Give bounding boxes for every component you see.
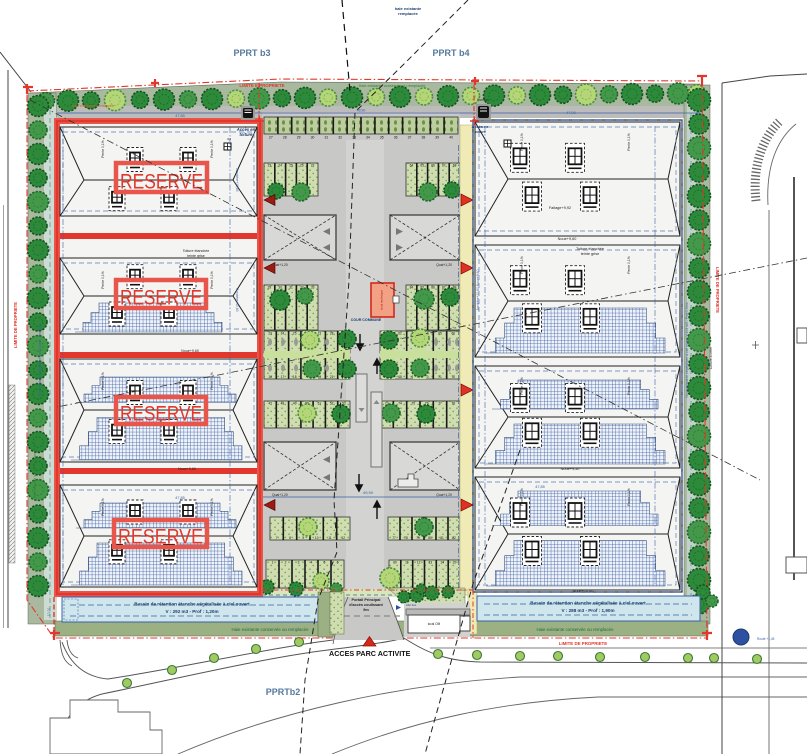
- svg-text:80: 80: [428, 536, 432, 540]
- svg-text:Toiture étanchée: Toiture étanchée: [183, 249, 210, 253]
- svg-text:9m: 9m: [363, 608, 369, 612]
- svg-text:82: 82: [452, 536, 456, 540]
- svg-text:2: 2: [285, 561, 287, 565]
- svg-text:31: 31: [289, 286, 293, 290]
- svg-text:Bassin de rétention étanche vé: Bassin de rétention étanche végétalisée …: [530, 601, 646, 606]
- svg-text:10: 10: [315, 536, 319, 540]
- svg-text:86: 86: [431, 286, 435, 290]
- svg-text:30: 30: [311, 136, 315, 140]
- svg-text:LIMITE DE PROPRIETE: LIMITE DE PROPRIETE: [13, 302, 18, 348]
- svg-text:14: 14: [440, 561, 444, 565]
- svg-text:Pente 0,1%: Pente 0,1%: [627, 377, 631, 395]
- svg-text:toiture: toiture: [239, 132, 253, 137]
- svg-text:Pente 0,1%: Pente 0,1%: [627, 488, 631, 506]
- svg-text:PPRT b3: PPRT b3: [233, 48, 270, 58]
- svg-text:Pente 0,1%: Pente 0,1%: [101, 271, 105, 289]
- svg-text:68: 68: [453, 164, 457, 168]
- svg-text:28: 28: [330, 332, 334, 336]
- svg-text:52: 52: [330, 402, 334, 406]
- svg-text:47,85: 47,85: [175, 496, 185, 500]
- svg-text:V : 288 m3 - Prof : 1,90m: V : 288 m3 - Prof : 1,90m: [561, 608, 614, 613]
- svg-text:23: 23: [268, 164, 272, 168]
- svg-text:Faitage+9,92: Faitage+9,92: [549, 206, 571, 210]
- svg-text:65: 65: [420, 164, 424, 168]
- svg-text:Noue+9,60: Noue+9,60: [558, 237, 577, 241]
- svg-text:27: 27: [269, 136, 273, 140]
- svg-text:78: 78: [452, 402, 456, 406]
- svg-text:Pente 0,1%: Pente 0,1%: [520, 133, 524, 151]
- svg-text:24: 24: [281, 332, 285, 336]
- svg-text:Noue+9,50: Noue+9,50: [561, 467, 580, 471]
- svg-text:COUR COMMUNE: COUR COMMUNE: [351, 318, 382, 322]
- svg-text:49,90: 49,90: [363, 490, 374, 495]
- svg-text:Haie existante conservée ou re: Haie existante conservée ou remplacée: [536, 627, 614, 632]
- svg-text:Route +1,45: Route +1,45: [757, 637, 775, 641]
- svg-text:48: 48: [281, 402, 285, 406]
- svg-text:78: 78: [404, 536, 408, 540]
- svg-text:81: 81: [440, 536, 444, 540]
- svg-text:Bassin de rétention étanche vé: Bassin de rétention étanche végétalisée …: [134, 602, 250, 607]
- svg-text:79: 79: [416, 536, 420, 540]
- svg-text:62: 62: [398, 332, 402, 336]
- svg-text:Noue existante végétalisée à c: Noue existante végétalisée à ciel ouvert…: [685, 302, 689, 397]
- svg-text:Pente 0,1%: Pente 0,1%: [520, 377, 524, 395]
- svg-text:31: 31: [325, 136, 329, 140]
- svg-text:Portillon: Portillon: [477, 98, 489, 102]
- svg-text:8: 8: [289, 536, 291, 540]
- svg-text:Pente 0,1%: Pente 0,1%: [627, 256, 631, 274]
- svg-text:30: 30: [278, 286, 282, 290]
- svg-text:37: 37: [408, 136, 412, 140]
- svg-text:64: 64: [410, 164, 414, 168]
- svg-text:Quai+1,20: Quai+1,20: [272, 493, 288, 497]
- svg-text:25: 25: [293, 332, 297, 336]
- svg-text:toiture: toiture: [474, 130, 486, 134]
- svg-text:local technique: local technique: [380, 290, 384, 310]
- svg-text:13: 13: [429, 561, 433, 565]
- svg-text:Pente 0,1%: Pente 0,1%: [210, 140, 214, 158]
- svg-text:Quai+1,20: Quai+1,20: [436, 263, 452, 267]
- svg-text:75: 75: [412, 402, 416, 406]
- svg-text:35: 35: [380, 136, 384, 140]
- svg-text:47,85: 47,85: [535, 485, 545, 489]
- svg-text:haie existante conservée: haie existante conservée: [72, 104, 114, 108]
- svg-text:34: 34: [366, 136, 370, 140]
- svg-text:local OM: local OM: [428, 622, 441, 626]
- svg-text:36: 36: [394, 136, 398, 140]
- svg-text:Pente 0,1%: Pente 0,1%: [210, 271, 214, 289]
- svg-text:Pente 0,1%: Pente 0,1%: [101, 498, 105, 516]
- svg-text:LIMITE DE PROPRIETE: LIMITE DE PROPRIETE: [559, 641, 607, 646]
- svg-text:40: 40: [449, 136, 453, 140]
- svg-text:Pente 0,1%: Pente 0,1%: [520, 256, 524, 274]
- svg-text:28: 28: [283, 136, 287, 140]
- svg-text:25: 25: [289, 164, 293, 168]
- svg-text:Noue+9,60: Noue+9,60: [178, 467, 196, 471]
- svg-text:Portail Principal: Portail Principal: [352, 598, 381, 602]
- svg-text:47: 47: [268, 402, 272, 406]
- svg-text:Toiture étanchée: Toiture étanchée: [576, 247, 604, 251]
- svg-text:RESERVE: RESERVE: [120, 403, 202, 426]
- svg-text:ACCES PARC ACTIVITE: ACCES PARC ACTIVITE: [329, 649, 411, 658]
- svg-text:Haie existante conservée ou re: Haie existante conservée ou remplacée: [231, 627, 309, 632]
- svg-text:9: 9: [302, 536, 304, 540]
- svg-text:47,00: 47,00: [566, 111, 576, 115]
- svg-text:6: 6: [337, 561, 339, 565]
- svg-text:39: 39: [435, 136, 439, 140]
- svg-text:PPRT b4: PPRT b4: [432, 48, 469, 58]
- svg-text:Pente 0,1%: Pente 0,1%: [210, 498, 214, 516]
- svg-text:77: 77: [392, 536, 396, 540]
- svg-text:Acrotère+10,60: Acrotère+10,60: [235, 288, 239, 311]
- svg-text:V : 292 m3 - Prof : 1,20m: V : 292 m3 - Prof : 1,20m: [165, 609, 218, 614]
- svg-text:RESERVE: RESERVE: [120, 287, 202, 310]
- svg-text:Noue existante végétalisée à c: Noue existante végétalisée à ciel ouvert…: [38, 324, 42, 396]
- svg-text:66: 66: [452, 332, 456, 336]
- svg-text:teinte grise: teinte grise: [187, 254, 205, 258]
- svg-text:5: 5: [324, 561, 326, 565]
- svg-text:teinte grise: teinte grise: [581, 252, 600, 256]
- svg-text:Abri bus: Abri bus: [406, 603, 417, 607]
- svg-text:Pente 0,1%: Pente 0,1%: [520, 488, 524, 506]
- svg-text:4: 4: [311, 561, 313, 565]
- svg-text:47,85: 47,85: [175, 114, 185, 118]
- svg-text:LIMITE DE PROPRIETE: LIMITE DE PROPRIETE: [715, 267, 720, 313]
- svg-text:LIMITE E PROPRIETE: LIMITE E PROPRIETE: [239, 83, 284, 88]
- svg-text:7: 7: [276, 536, 278, 540]
- svg-text:Pente 0,1%: Pente 0,1%: [210, 372, 214, 390]
- svg-text:15: 15: [452, 561, 456, 565]
- svg-text:12: 12: [342, 536, 346, 540]
- svg-text:68: 68: [398, 375, 402, 379]
- svg-text:Accès en: Accès en: [471, 125, 489, 129]
- svg-text:67: 67: [442, 164, 446, 168]
- svg-text:10: 10: [393, 561, 397, 565]
- svg-text:12: 12: [417, 561, 421, 565]
- svg-text:1: 1: [272, 561, 274, 565]
- svg-text:21: 21: [330, 375, 334, 379]
- svg-text:Quai+1,20: Quai+1,20: [436, 493, 452, 497]
- svg-text:74: 74: [398, 402, 402, 406]
- svg-text:71: 71: [438, 375, 442, 379]
- svg-text:PPRTb2: PPRTb2: [266, 687, 301, 697]
- svg-text:remplacée: remplacée: [398, 11, 419, 16]
- svg-text:3: 3: [298, 561, 300, 565]
- svg-text:26: 26: [300, 164, 304, 168]
- svg-text:32: 32: [338, 136, 342, 140]
- svg-text:72: 72: [452, 375, 456, 379]
- svg-text:Acrotère+10,60 Noue+9,60: Acrotère+10,60 Noue+9,60: [476, 269, 480, 310]
- svg-text:Pente 0,1%: Pente 0,1%: [101, 372, 105, 390]
- svg-text:27: 27: [311, 164, 315, 168]
- svg-text:Haie existante conservée ou re: Haie existante conservée ou remplacée: [359, 84, 426, 88]
- svg-text:Pente 0,1%: Pente 0,1%: [101, 140, 105, 158]
- svg-text:11: 11: [405, 561, 409, 565]
- svg-text:38: 38: [422, 136, 426, 140]
- svg-text:RESERVE: RESERVE: [118, 526, 203, 549]
- svg-text:24: 24: [278, 164, 282, 168]
- svg-text:29: 29: [268, 286, 272, 290]
- svg-text:29: 29: [297, 136, 301, 140]
- svg-text:Haie existante conservée ou re: Haie existante conservée ou remplacée: [33, 442, 37, 498]
- svg-text:Pente 0,1%: Pente 0,1%: [627, 133, 631, 151]
- svg-text:49: 49: [293, 402, 297, 406]
- svg-text:65: 65: [438, 332, 442, 336]
- svg-text:17: 17: [281, 375, 285, 379]
- svg-text:d'accès coulissant: d'accès coulissant: [349, 603, 383, 607]
- svg-text:Acrotère+10,60: Acrotère+10,60: [235, 168, 239, 191]
- svg-text:Noue+9,60: Noue+9,60: [181, 349, 199, 353]
- svg-text:18: 18: [293, 375, 297, 379]
- svg-text:23: 23: [268, 332, 272, 336]
- svg-text:RESERVE: RESERVE: [120, 171, 203, 194]
- svg-text:Noue+10,60: Noue+10,60: [573, 589, 594, 593]
- svg-text:84: 84: [410, 286, 414, 290]
- svg-text:16: 16: [268, 375, 272, 379]
- svg-text:Clôture à créer: Clôture à créer: [709, 346, 713, 369]
- svg-text:11: 11: [328, 536, 332, 540]
- svg-text:33: 33: [311, 286, 315, 290]
- svg-text:77: 77: [438, 402, 442, 406]
- svg-text:10,00: 10,00: [47, 608, 51, 617]
- svg-text:51: 51: [318, 402, 322, 406]
- svg-text:66: 66: [431, 164, 435, 168]
- svg-text:3|4: 3|4: [227, 137, 231, 141]
